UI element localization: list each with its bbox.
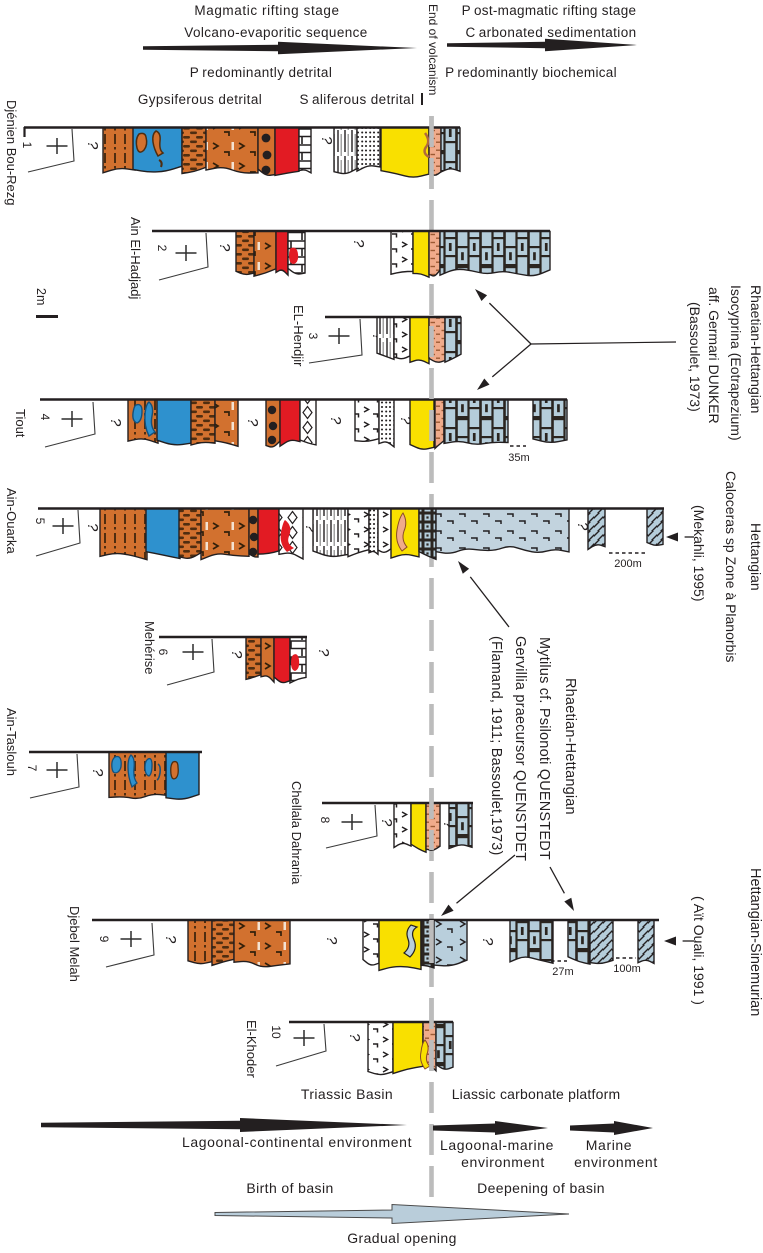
svg-text:?: ? (89, 768, 106, 777)
svg-text:(Mekahli, 1995): (Mekahli, 1995) (691, 505, 707, 602)
svg-text:S aliferous detrital: S aliferous detrital (299, 92, 414, 107)
svg-text:Isocyprina (Eotrapezium): Isocyprina (Eotrapezium) (728, 285, 744, 441)
svg-text:Lagoonal-marine: Lagoonal-marine (440, 1137, 554, 1153)
svg-text:Volcano-evaporitic sequence: Volcano-evaporitic sequence (184, 25, 367, 40)
svg-text:Mytilus cf. Psilonoti QUENSTED: Mytilus cf. Psilonoti QUENSTEDT (536, 637, 552, 860)
svg-text:7: 7 (25, 765, 39, 772)
svg-text:6: 6 (156, 649, 170, 656)
svg-text:Djebel Melah: Djebel Melah (67, 906, 82, 982)
svg-text:Deepening of basin: Deepening of basin (477, 1180, 605, 1196)
svg-text:Rhaetian-Hettangian: Rhaetian-Hettangian (562, 678, 578, 815)
svg-text:Gervillia praecursor QUENSTDET: Gervillia praecursor QUENSTDET (512, 636, 528, 861)
svg-text:35m: 35m (508, 452, 529, 464)
svg-text:?: ? (216, 243, 233, 252)
svg-text:?: ? (162, 935, 179, 944)
svg-text:4: 4 (38, 414, 52, 421)
svg-text:100m: 100m (613, 963, 641, 975)
svg-text:Gradual opening: Gradual opening (347, 1230, 457, 1246)
svg-text:Mehérise: Mehérise (142, 621, 157, 674)
svg-text:Marine: Marine (586, 1137, 632, 1153)
svg-text:8: 8 (318, 817, 332, 824)
svg-text:?: ? (84, 141, 101, 150)
svg-text:27m: 27m (552, 966, 573, 978)
svg-text:(Flamand, 1911; Bassoulet,1973: (Flamand, 1911; Bassoulet,1973) (488, 636, 504, 856)
svg-text:3: 3 (306, 333, 320, 340)
svg-text:C arbonated sedimentation: C arbonated sedimentation (465, 25, 636, 40)
svg-text:5: 5 (33, 518, 47, 525)
svg-text:End of volcanism: End of volcanism (426, 4, 440, 95)
svg-text:Tiout: Tiout (13, 409, 28, 438)
svg-text:Caloceras sp Zone à Planorbis: Caloceras sp Zone à Planorbis (723, 471, 739, 662)
svg-text:EL-Hendjir: EL-Hendjir (291, 305, 306, 367)
svg-text:( Aït Ouali, 1991 ): ( Aït Ouali, 1991 ) (691, 896, 707, 1005)
svg-text:Magmatic rifting stage: Magmatic rifting stage (194, 3, 339, 18)
svg-text:10: 10 (269, 1025, 283, 1039)
svg-text:Ain-Taslouh: Ain-Taslouh (4, 708, 19, 776)
svg-text:Gypsiferous detrital: Gypsiferous detrital (138, 92, 262, 107)
svg-text:Triassic Basin: Triassic Basin (301, 1086, 393, 1102)
svg-text:?: ? (244, 418, 261, 427)
svg-text:?: ? (350, 239, 367, 248)
svg-text:?: ? (228, 650, 245, 659)
svg-text:?: ? (318, 136, 335, 145)
svg-text:Liassic carbonate platform: Liassic carbonate platform (452, 1086, 621, 1102)
svg-text:Chellala Dahrania: Chellala Dahrania (289, 781, 304, 885)
svg-text:?: ? (315, 648, 332, 657)
svg-text:Ain El-Hadjadj: Ain El-Hadjadj (128, 217, 143, 299)
svg-text:Birth of basin: Birth of basin (246, 1180, 333, 1196)
svg-text:Djénien Bou-Rezg: Djénien Bou-Rezg (4, 100, 19, 206)
svg-text:El-Khoder: El-Khoder (244, 1020, 259, 1078)
svg-text:?: ? (84, 523, 101, 532)
svg-text:9: 9 (97, 936, 111, 943)
svg-text:2m: 2m (34, 288, 48, 305)
svg-text:?: ? (378, 818, 395, 827)
svg-text:(Bassoulet, 1973): (Bassoulet, 1973) (687, 302, 703, 412)
svg-text:P redominantly biochemical: P redominantly biochemical (445, 65, 617, 80)
svg-text:Hettangian: Hettangian (748, 523, 763, 591)
svg-text:Hettangian-Sinemurian: Hettangian-Sinemurian (747, 868, 763, 1016)
svg-text:200m: 200m (614, 558, 642, 570)
svg-text:P ost-magmatic rifting stage: P ost-magmatic rifting stage (462, 3, 637, 18)
svg-text:Lagoonal-continental environme: Lagoonal-continental environment (182, 1134, 412, 1150)
svg-text:?: ? (479, 937, 496, 946)
svg-text:1: 1 (20, 142, 34, 149)
svg-text:?: ? (327, 416, 344, 425)
svg-text:Rhaetian-Hettangian: Rhaetian-Hettangian (748, 285, 763, 413)
svg-text:aff. Germari DUNKER: aff. Germari DUNKER (706, 287, 722, 424)
svg-text:environment: environment (461, 1154, 545, 1170)
svg-text:?: ? (346, 1033, 363, 1042)
svg-text:environment: environment (574, 1154, 658, 1170)
svg-text:?: ? (107, 418, 124, 427)
svg-text:Ain-Ouarka: Ain-Ouarka (4, 488, 19, 555)
svg-text:2: 2 (155, 245, 169, 252)
svg-text:P redominantly detrital: P redominantly detrital (190, 65, 332, 80)
svg-text:?: ? (323, 936, 340, 945)
